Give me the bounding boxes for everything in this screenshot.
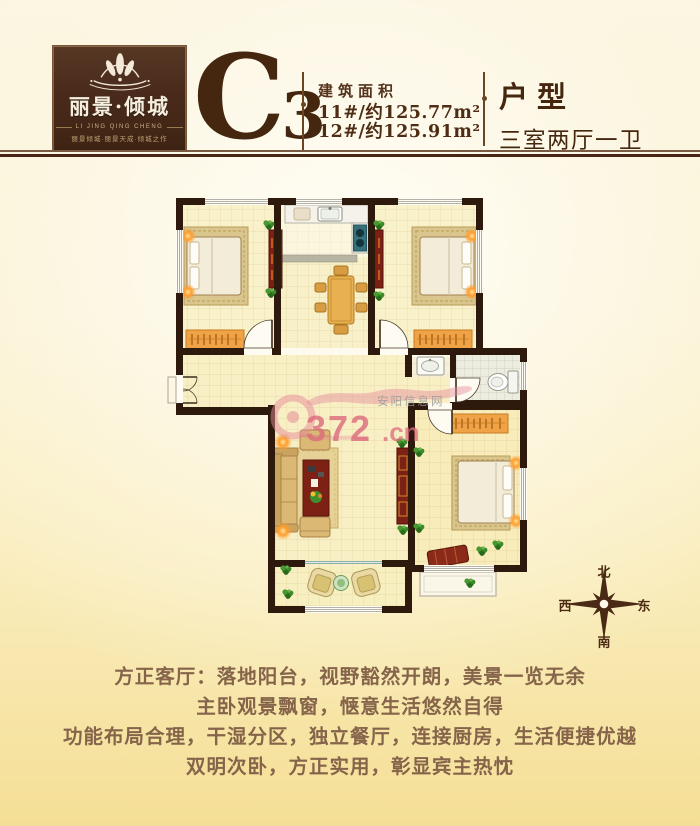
building-area-line: 11#/约125.77m² bbox=[318, 104, 481, 123]
floorplan-flyer: 丽景·倾城 LI JING QING CHENG 丽景倾城·丽景天成·倾城之作 … bbox=[0, 0, 700, 826]
compass-south-label: 南 bbox=[597, 632, 610, 651]
compass-north-label: 北 bbox=[597, 562, 610, 581]
logo-tagline-en: LI JING QING CHENG bbox=[53, 124, 186, 130]
compass-east-label: 东 bbox=[637, 596, 650, 615]
bedroom-topright-furniture bbox=[412, 227, 480, 349]
divider-dot bbox=[301, 102, 306, 107]
logo-ornament-icon bbox=[77, 51, 163, 91]
compass-west-label: 西 bbox=[558, 596, 571, 615]
description-block: 方正客厅：落地阳台，视野豁然开朗，美景一览无余 主卧观景飘窗，惬意生活悠然自得 … bbox=[0, 662, 700, 782]
description-line: 双明次卧，方正实用，彰显宾主热忱 bbox=[0, 752, 700, 782]
logo-tagline-cn: 丽景倾城·丽景天成·倾城之作 bbox=[53, 133, 186, 143]
description-line: 方正客厅：落地阳台，视野豁然开朗，美景一览无余 bbox=[0, 662, 700, 692]
unit-code: C3 bbox=[193, 48, 326, 183]
unit-type-label: 户型 bbox=[499, 74, 643, 116]
header-divider-2 bbox=[483, 72, 485, 146]
description-line: 主卧观景飘窗，惬意生活悠然自得 bbox=[0, 692, 700, 722]
building-area-label: 建筑面积 bbox=[318, 80, 481, 101]
unit-code-letter: C bbox=[193, 30, 285, 166]
divider-dot bbox=[482, 96, 487, 101]
logo-title: 丽景·倾城 bbox=[53, 91, 186, 121]
watermark-site: 安阳信息网 bbox=[377, 394, 445, 408]
divider bbox=[56, 127, 72, 128]
floorplan-drawing: 372 .cn 安阳信息网 bbox=[165, 185, 537, 617]
header-rule-light bbox=[0, 150, 700, 152]
header-divider-1 bbox=[302, 72, 304, 150]
logo: 丽景·倾城 LI JING QING CHENG 丽景倾城·丽景天成·倾城之作 bbox=[52, 45, 187, 152]
watermark-number: 372 bbox=[306, 408, 372, 449]
building-area: 建筑面积 11#/约125.77m² 12#/约125.91m² bbox=[318, 80, 481, 141]
description-line: 功能布局合理，干湿分区，独立餐厅，连接厨房，生活便捷优越 bbox=[0, 722, 700, 752]
building-area-line: 12#/约125.91m² bbox=[318, 123, 481, 142]
divider bbox=[167, 127, 183, 128]
header-rule-dark bbox=[0, 154, 700, 157]
balcony-window bbox=[305, 561, 382, 564]
bedroom-topleft-furniture bbox=[180, 227, 248, 349]
watermark-domain: .cn bbox=[382, 417, 420, 447]
unit-type: 户型 三室两厅一卫 bbox=[499, 74, 643, 155]
